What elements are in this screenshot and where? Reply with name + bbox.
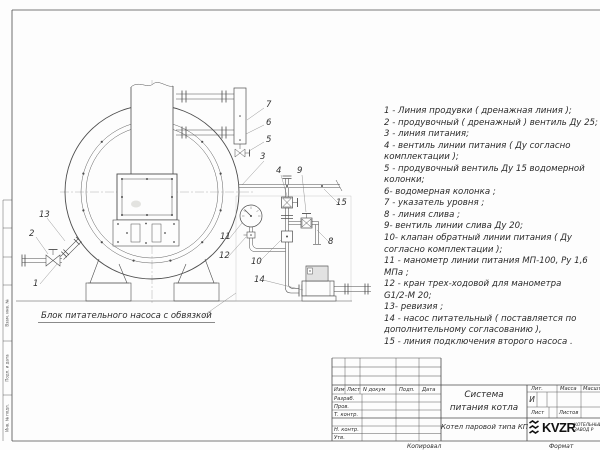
legend-item: 14 - насос питательный ( поставляется по…	[384, 314, 598, 337]
part-label-13: 13	[39, 210, 50, 220]
drain-line	[22, 237, 82, 267]
part-label-12: 12	[219, 251, 230, 261]
lit-label: Лит.	[531, 386, 543, 392]
format-label: Формат	[549, 443, 573, 450]
part-label-15: 15	[336, 198, 347, 208]
document-title: Система питания котла	[441, 389, 527, 414]
drawing-sheet: { "sheet": {"background": "#fdfdfd", "li…	[0, 0, 600, 450]
margin-cell-label: Инв. № подл.	[5, 404, 10, 432]
stamp-signature-row: Пров.	[334, 404, 349, 410]
kvzr-logo-mark	[529, 420, 540, 435]
margin-cell-label: Подп. и дата	[5, 354, 10, 381]
part-label-11: 11	[220, 232, 231, 242]
feed-line	[239, 176, 342, 191]
stamp-signature-row: Т. контр.	[334, 412, 358, 418]
kvzr-logo: KVZR	[529, 420, 575, 435]
part-label-14: 14	[254, 275, 265, 285]
sheet-label: Лист	[531, 410, 544, 416]
legend-item: 1 - Линия продувки ( дренажная линия );	[384, 106, 598, 118]
kvzr-logo-subtext-line2: ЗАВОД Р	[574, 428, 600, 433]
stamp-header-col: Изм	[334, 387, 345, 393]
kvzr-logo-text: KVZR	[542, 420, 575, 435]
stamp-header-col: Лист	[347, 387, 360, 393]
leader-lines	[36, 108, 340, 316]
product-name: Котел паровой типа КП	[441, 423, 527, 431]
part-label-3: 3	[260, 152, 265, 162]
legend-item: 9- вентиль линии слива Ду 20;	[384, 221, 598, 233]
margin-cell-label: Взам. инв. №	[5, 299, 10, 326]
legend-item: 13- ревизия ;	[384, 302, 598, 314]
scale-label: Масштаб	[583, 386, 600, 392]
water-level-column	[176, 88, 250, 157]
part-label-8: 8	[328, 237, 333, 247]
part-label-4: 4	[276, 166, 281, 176]
chimney	[131, 82, 173, 175]
legend-list: 1 - Линия продувки ( дренажная линия );2…	[384, 106, 598, 348]
stamp-signature-row: Разраб.	[334, 396, 354, 402]
lit-value: И	[527, 395, 537, 404]
part-label-9: 9	[297, 166, 302, 176]
part-label-7: 7	[266, 100, 271, 110]
stamp-header-col: Подп.	[399, 387, 415, 393]
stamp-signature-row: Утв.	[334, 435, 345, 441]
part-label-5: 5	[266, 135, 271, 145]
legend-item: 4 - вентиль линии питания ( Ду согласно …	[384, 141, 598, 164]
sheets-label: Листов	[559, 410, 578, 416]
pressure-gauge-icon	[240, 205, 286, 252]
part-label-2: 2	[29, 229, 34, 239]
legend-item: 11 - манометр линии питания МП-100, Ру 1…	[384, 256, 598, 279]
stamp-header-col: Дата	[422, 387, 435, 393]
legend-item: 3 - линия питания;	[384, 129, 598, 141]
legend-item: 12 - кран трех-ходовой для манометра G1/…	[384, 279, 598, 302]
legend-item: 7 - указатель уровня ;	[384, 198, 598, 210]
legend-item: 10- клапан обратный линии питания ( Ду с…	[384, 233, 598, 256]
copied-label: Копировал	[407, 443, 441, 450]
legend-item: 15 - линия подключения второго насоса .	[384, 337, 598, 349]
legend-item: 2 - продувочный ( дренажный ) вентиль Ду…	[384, 118, 598, 130]
legend-item: 8 - линия слива ;	[384, 210, 598, 222]
legend-item: 5 - продувочный вентиль Ду 15 водомерной…	[384, 164, 598, 187]
lower-plate	[113, 220, 179, 246]
kvzr-logo-subtext: КОТЕЛЬНЫЙ ЗАВОД Р	[574, 423, 600, 434]
mass-label: Масса	[560, 386, 577, 392]
stamp-header-col: N докум	[363, 387, 385, 393]
legend-item: 6- водомерная колонка ;	[384, 187, 598, 199]
boiler-door	[117, 174, 177, 220]
part-label-6: 6	[266, 118, 271, 128]
feed-pump	[299, 266, 371, 301]
part-label-10: 10	[251, 257, 262, 267]
part-label-1: 1	[33, 279, 38, 289]
stamp-signature-row: Н. контр.	[334, 427, 359, 433]
pump-block-caption: Блок питательного насоса с обвязкой	[38, 311, 215, 323]
